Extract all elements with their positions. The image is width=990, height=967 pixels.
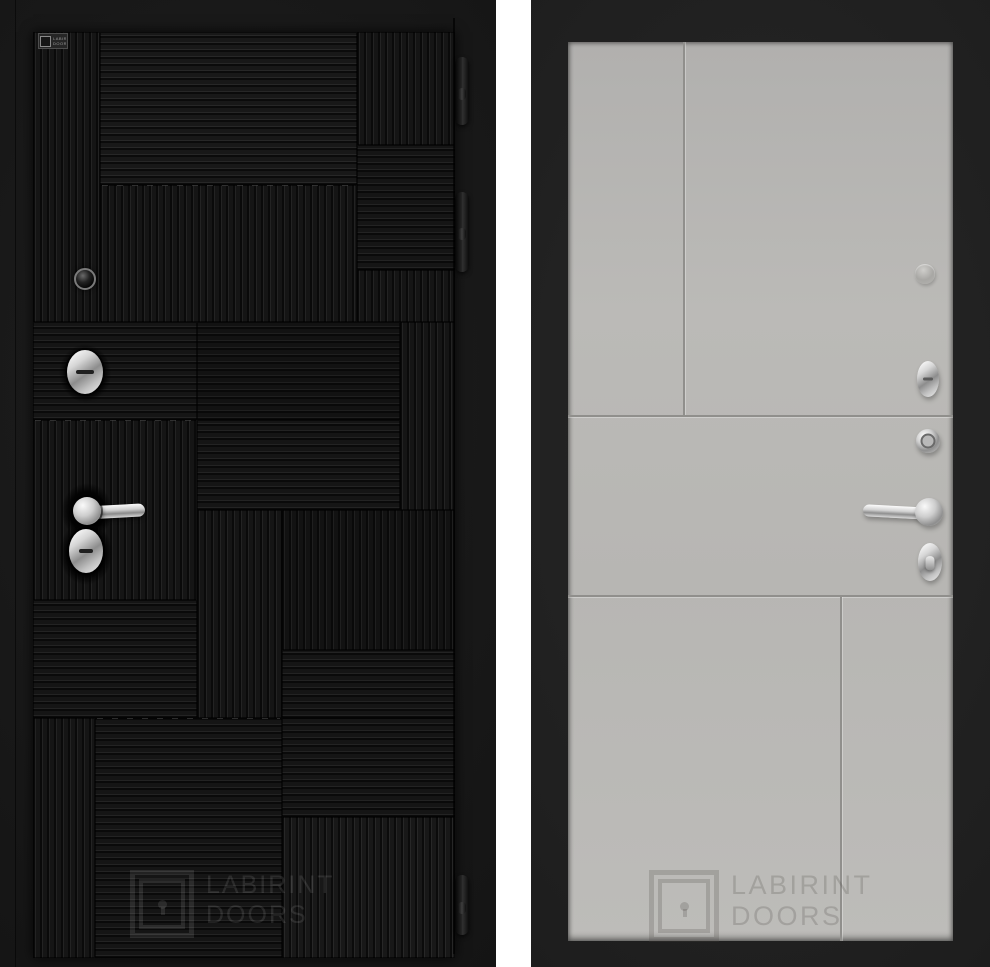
door-hinge-bottom: [455, 875, 469, 935]
keyhole-slot: [923, 378, 933, 381]
rib-block: [33, 322, 197, 420]
thumbturn-lock: [918, 543, 942, 581]
rib-block: [95, 718, 282, 958]
brand-plate: LABIRINT DOORS: [38, 33, 68, 49]
grey-door-photo: LABIRINT DOORS: [531, 0, 990, 967]
rib-block: [100, 185, 357, 322]
rib-block: [197, 420, 400, 510]
rib-block: [282, 510, 455, 650]
rib-block: [400, 322, 455, 510]
lock-cylinder-bottom: [69, 529, 103, 573]
rib-block: [282, 718, 455, 817]
thumbturn-knob: [926, 556, 935, 570]
rib-block: [197, 322, 400, 420]
rib-block: [357, 145, 455, 270]
watermark-line2: DOORS: [731, 901, 873, 932]
door-hinge-middle: [455, 192, 469, 272]
rib-block: [282, 817, 455, 958]
keyhole-slot: [76, 370, 94, 374]
rib-block: [33, 600, 197, 718]
door-panel-grey: LABIRINT DOORS: [568, 42, 953, 941]
rib-block: [357, 270, 455, 322]
peephole: [74, 268, 96, 290]
door-handle-rosette: [915, 498, 943, 526]
brand-plate-line2: DOORS: [53, 41, 66, 46]
brand-plate-logo-icon: [40, 36, 51, 47]
lock-cylinder: [916, 429, 940, 453]
rib-block: [100, 32, 357, 185]
peephole: [915, 264, 935, 284]
door-product-photos: LABIRINT DOORS: [0, 0, 990, 967]
lock-cylinder-top: [67, 350, 103, 394]
keyhole-slot: [79, 549, 93, 553]
door-leaf-black: LABIRINT DOORS: [33, 32, 455, 958]
leaf-edge-line: [453, 18, 455, 954]
black-door-photo: LABIRINT DOORS: [0, 0, 496, 967]
brand-plate-text: LABIRINT DOORS: [53, 36, 66, 46]
rib-block: [357, 32, 455, 145]
panel-groove-horizontal-upper: [568, 415, 953, 417]
door-handle-rosette: [73, 497, 101, 525]
panel-groove-vertical-top: [683, 42, 685, 415]
rib-block: [282, 650, 455, 718]
panel-groove-vertical-bottom: [840, 597, 842, 941]
panel-groove-horizontal-lower: [568, 595, 953, 597]
frame-gap-line: [15, 0, 16, 967]
watermark: LABIRINT DOORS: [649, 870, 873, 942]
rib-block: [33, 718, 95, 958]
door-hinge-top: [455, 57, 469, 125]
rib-block: [197, 510, 282, 718]
lock-escutcheon-top: [917, 361, 939, 397]
watermark-line1: LABIRINT: [731, 870, 873, 901]
labyrinth-logo-icon: [649, 870, 719, 942]
watermark-text: LABIRINT DOORS: [731, 870, 873, 932]
